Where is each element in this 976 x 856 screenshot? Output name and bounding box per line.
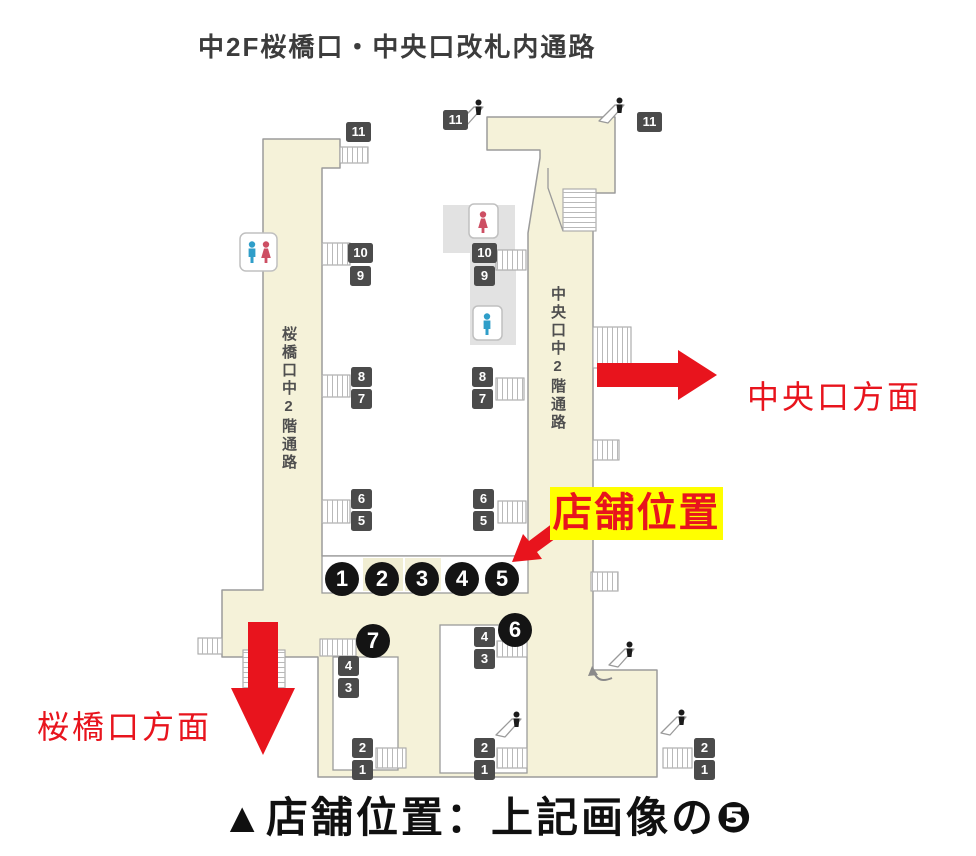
- stairs-top-internal: [563, 189, 596, 231]
- platform-badge-8: 8: [351, 367, 372, 387]
- escalator-icon: [609, 642, 634, 668]
- right-corridor-label: 中央口中2階通路: [547, 286, 568, 432]
- stairs-left-10-9: [322, 243, 350, 265]
- platform-badge-4: 4: [338, 656, 359, 676]
- shop-circle-3: 3: [405, 562, 439, 596]
- shop-circle-5: 5: [485, 562, 519, 596]
- stairs-center-10-9: [496, 250, 526, 270]
- platform-badge-6: 6: [351, 489, 372, 509]
- store-location-callout: 店舗位置: [550, 487, 723, 540]
- stairs-above-4-3-left: [320, 639, 356, 656]
- toilet-icon: [240, 233, 277, 271]
- platform-badge-11: 11: [637, 112, 662, 132]
- platform-badge-11: 11: [443, 110, 468, 130]
- direction-central-exit-label: 中央口方面: [747, 372, 922, 418]
- shop-circle-7: 7: [356, 624, 390, 658]
- platform-badge-3: 3: [474, 649, 495, 669]
- stairs-right-small: [593, 440, 619, 460]
- stairs-left-8-7: [322, 375, 350, 397]
- platform-badge-2: 2: [352, 738, 373, 758]
- stairs-bottomleft-edge: [198, 638, 222, 654]
- stairs-2-1-left: [376, 748, 406, 768]
- platform-badge-7: 7: [351, 389, 372, 409]
- platform-badge-5: 5: [473, 511, 494, 531]
- platform-badge-1: 1: [694, 760, 715, 780]
- toilet-male-icon: [473, 306, 502, 340]
- platform-badge-7: 7: [472, 389, 493, 409]
- stairs-center-8-7: [496, 378, 524, 400]
- escalator-icon: [661, 710, 686, 736]
- stairs-2-1-right: [663, 748, 692, 768]
- left-corridor-label: 桜橋口中2階通路: [278, 326, 299, 472]
- platform-badge-1: 1: [352, 760, 373, 780]
- stairs-center-6-5: [498, 501, 526, 523]
- direction-sakurabashi-exit-label: 桜橋口方面: [37, 702, 212, 748]
- page-title: 中2F桜橋口・中央口改札内通路: [198, 27, 596, 64]
- stairs-right-large: [593, 327, 631, 368]
- shop-circle-2: 2: [365, 562, 399, 596]
- caption-store-location: ▲店舗位置：上記画像の❺: [0, 784, 976, 845]
- platform-badge-11: 11: [346, 122, 371, 142]
- platform-badge-4: 4: [474, 627, 495, 647]
- platform-badge-9: 9: [474, 266, 495, 286]
- stairs-left-6-5: [322, 500, 350, 523]
- station-floor-map-page: 中2F桜橋口・中央口改札内通路 11 11 11 10 9 10 9 8 7 8…: [0, 0, 976, 856]
- shop-circle-4: 4: [445, 562, 479, 596]
- platform-badge-6: 6: [473, 489, 494, 509]
- platform-badge-10: 10: [348, 243, 373, 263]
- platform-badge-2: 2: [474, 738, 495, 758]
- platform-badge-8: 8: [472, 367, 493, 387]
- platform-badge-5: 5: [351, 511, 372, 531]
- stairs-2-1-center: [497, 748, 527, 768]
- shop-circle-1: 1: [325, 562, 359, 596]
- stairs-right-shoprow: [591, 572, 618, 591]
- escalator-icon: [599, 98, 624, 124]
- platform-badge-9: 9: [350, 266, 371, 286]
- platform-badge-2: 2: [694, 738, 715, 758]
- platform-badge-3: 3: [338, 678, 359, 698]
- platform-badge-1: 1: [474, 760, 495, 780]
- stairs-11-topleft: [340, 147, 368, 163]
- toilet-female-icon: [469, 204, 498, 238]
- platform-badge-10: 10: [472, 243, 497, 263]
- shop-circle-6: 6: [498, 613, 532, 647]
